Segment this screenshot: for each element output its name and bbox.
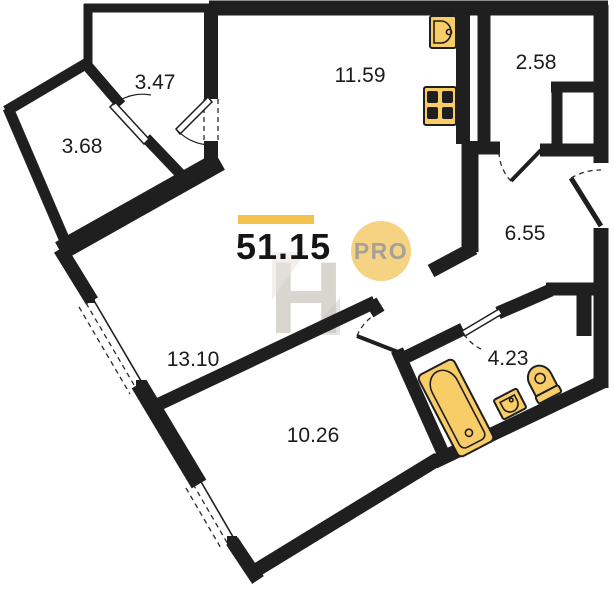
wall-balcony-living-divider — [60, 161, 220, 251]
room-label-kitchen: 11.59 — [335, 64, 386, 87]
accent-bar — [238, 215, 314, 224]
window-bedroom — [200, 480, 236, 542]
room-label-balcony-left: 3.68 — [62, 135, 103, 158]
kitchen-sink-icon — [430, 16, 456, 48]
entrance-door — [571, 170, 601, 226]
wall-balcony-top — [84, 4, 213, 66]
bedroom-door — [357, 313, 398, 352]
room-label-bedroom: 10.26 — [287, 424, 340, 447]
window-living-room — [93, 299, 144, 386]
room-label-hallway: 2.58 — [516, 51, 557, 74]
pro-badge-label: PRO — [354, 238, 408, 264]
total-area-block: 51.15 — [236, 215, 331, 267]
total-area-value: 51.15 — [236, 226, 331, 267]
room-label-corridor: 6.55 — [505, 222, 546, 245]
stove-icon — [424, 87, 456, 125]
pro-badge: PRO — [351, 221, 411, 281]
floor-plan: H — [0, 0, 614, 600]
room-label-balcony-top: 3.47 — [135, 71, 176, 94]
bathroom-door — [462, 309, 502, 349]
window-living-room-glazing — [79, 303, 137, 394]
kitchen-balcony-door — [176, 97, 218, 145]
room-label-bathroom: 4.23 — [488, 347, 529, 370]
room-label-living-room: 13.10 — [167, 348, 220, 371]
hallway-door — [499, 150, 541, 181]
